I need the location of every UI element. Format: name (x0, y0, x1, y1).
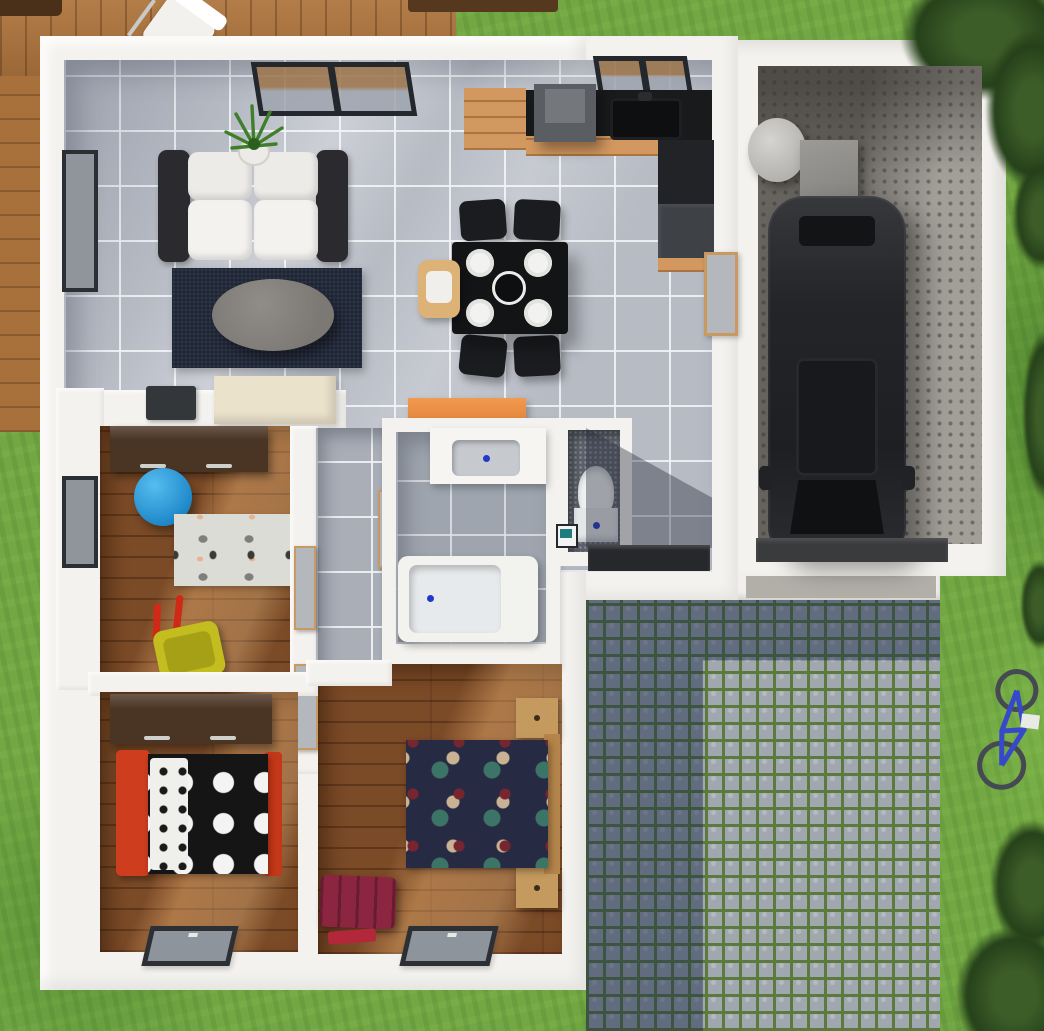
door-mullion (328, 67, 342, 111)
wardrobe-handle (144, 736, 170, 740)
potted-plant (216, 98, 288, 170)
dining-chair (513, 199, 561, 241)
kids-room-door (294, 546, 316, 630)
suitcase (319, 875, 397, 930)
outdoor-bench (408, 0, 558, 12)
bathtub-inner (409, 565, 501, 633)
sofa-armrest (316, 150, 348, 262)
bedroom2-window (399, 926, 498, 966)
nightstand (516, 868, 558, 908)
kitchen-wood-cabinet (464, 88, 526, 150)
window-handle (188, 933, 198, 937)
floor-plan-rendering (0, 0, 1044, 1031)
nightstand-knob (534, 715, 540, 721)
car (768, 196, 906, 556)
car-rear-glass (796, 358, 878, 476)
living-window (62, 150, 98, 292)
car-sunroof (799, 216, 875, 246)
window-mullion (639, 61, 651, 91)
bathtub (398, 556, 538, 642)
kitchen-faucet (638, 92, 652, 101)
sink-basin (452, 440, 520, 476)
wardrobe-handle (206, 464, 232, 468)
car-mirror-right (901, 466, 915, 490)
bed1-headboard (116, 750, 150, 876)
front-door (588, 545, 710, 571)
high-chair (418, 260, 460, 318)
vanity-sink (430, 428, 546, 484)
dining-chair (459, 198, 508, 241)
car-windshield (790, 480, 884, 534)
bedroom2-door-leaf (306, 660, 392, 686)
tv-box (146, 386, 196, 420)
garage-apron (746, 576, 936, 598)
boiler-box (800, 140, 858, 202)
bed1-pillows (150, 758, 188, 870)
sofa-seat-cushion (188, 200, 252, 260)
coffee-table (212, 279, 334, 351)
mini-sink-basin (560, 529, 572, 538)
nightstand (516, 698, 558, 738)
dining-chair (458, 334, 508, 379)
kitchen-counter-side (658, 140, 714, 204)
plate (524, 299, 552, 327)
dining-chair (513, 335, 561, 377)
wc-mini-sink (556, 524, 578, 548)
kids-wardrobe (110, 426, 268, 472)
wardrobe-handle (210, 736, 236, 740)
high-chair-seat (426, 271, 452, 303)
kitchen-sink (610, 98, 682, 140)
water-heater-cylinder (748, 118, 806, 182)
bedroom1-wardrobe (110, 694, 272, 744)
bedroom1-window (141, 926, 238, 966)
garage-door (756, 538, 948, 562)
window-handle (447, 933, 457, 937)
car-mirror-left (759, 466, 773, 490)
plate (466, 299, 494, 327)
tub-drain (427, 595, 434, 602)
garage-service-door (704, 252, 738, 336)
beige-sideboard (214, 376, 336, 424)
cooktop-hood (534, 84, 596, 142)
sofa-seat-cushion (254, 200, 318, 260)
bed2-dotted-duvet (406, 740, 548, 868)
plate (524, 249, 552, 277)
plate (466, 249, 494, 277)
kids-window (62, 476, 98, 568)
hood-chimney (545, 89, 585, 123)
animal-rug (174, 514, 296, 586)
sink-drain (483, 455, 490, 462)
sofa-armrest (158, 150, 190, 262)
outdoor-table-edge (0, 0, 62, 16)
center-bowl (492, 271, 526, 305)
nightstand-knob (534, 885, 540, 891)
